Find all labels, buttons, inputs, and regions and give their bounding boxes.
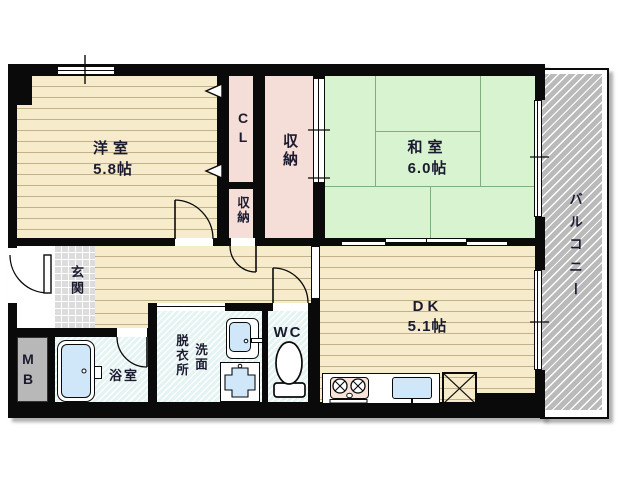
door-gap-bathroom — [117, 328, 147, 337]
western-room-label: 洋室 — [60, 141, 166, 156]
western-room-size: 5.8帖 — [60, 162, 166, 177]
meter-box-label: MB — [20, 351, 35, 391]
bathtub-inner — [61, 344, 91, 398]
bathroom-label: 浴室 — [99, 369, 149, 382]
entrance-label: 玄関 — [68, 265, 83, 297]
floor-plan: バルコニー — [0, 0, 640, 480]
washbasin-faucet — [251, 338, 263, 343]
window-dk-balcony — [534, 270, 542, 370]
wall-mid-a — [8, 238, 175, 246]
sliding-door-closet-japanese — [313, 78, 325, 183]
fusuma-panel — [466, 241, 508, 246]
cl-label: CL — [233, 110, 250, 148]
tatami-line — [480, 76, 481, 186]
wall-bottom — [8, 402, 542, 418]
wall-cl-bottom — [217, 182, 265, 189]
tatami-line — [430, 186, 431, 238]
window-line — [537, 101, 538, 216]
dk-size: 5.1帖 — [375, 319, 480, 334]
door-gap-closet-small — [231, 238, 255, 246]
wall-mid-b — [213, 238, 231, 246]
closet-small-label: 収納 — [234, 196, 248, 225]
japanese-room-size: 6.0帖 — [375, 161, 480, 176]
fusuma-panel — [426, 238, 467, 243]
dk-label: DK — [375, 299, 480, 314]
window-line — [537, 271, 538, 369]
fusuma-panel — [385, 238, 427, 243]
door-gap-western — [175, 238, 213, 246]
wall-corner-pillar — [8, 64, 32, 105]
wall-right-a — [535, 64, 545, 100]
washstand-label: 洗面 — [191, 343, 206, 372]
wall-left-lower — [8, 303, 17, 418]
wall-washroom-west — [148, 311, 157, 402]
wall-bottom-step — [476, 393, 542, 404]
japanese-room-label: 和室 — [375, 140, 480, 155]
washing-machine — [220, 362, 260, 402]
washbasin-bowl — [229, 322, 251, 352]
door-gap-wc — [273, 303, 308, 311]
sliding-door-line — [157, 306, 225, 307]
balcony-label: バルコニー — [564, 192, 581, 305]
wall-mb-right — [48, 337, 55, 402]
closet-large-label: 収納 — [281, 133, 297, 169]
wall-cl-closet — [253, 64, 265, 246]
fusuma-panel — [341, 241, 386, 246]
window-line — [58, 70, 114, 71]
tatami-line — [375, 131, 480, 132]
wall-corridor-south-b — [225, 303, 273, 311]
western-room-floor — [17, 76, 217, 238]
stove — [330, 377, 369, 399]
dressing-room-label: 脱衣所 — [172, 334, 187, 378]
sliding-door-line — [318, 79, 319, 182]
wall-wc-east — [308, 311, 320, 402]
sliding-door-washroom — [157, 303, 225, 311]
corridor-floor — [95, 246, 311, 303]
corridor-floor-lower — [95, 303, 148, 328]
wall-corridor-south-c — [308, 303, 320, 311]
wall-corridor-south-a — [148, 303, 157, 311]
wall-western-cl — [217, 64, 229, 246]
wc-label: WC — [269, 325, 307, 340]
kitchen-sink — [392, 377, 432, 399]
opening-corridor-dk — [311, 247, 320, 298]
wall-washroom-wc — [262, 311, 268, 402]
window-japanese-balcony — [534, 100, 542, 217]
